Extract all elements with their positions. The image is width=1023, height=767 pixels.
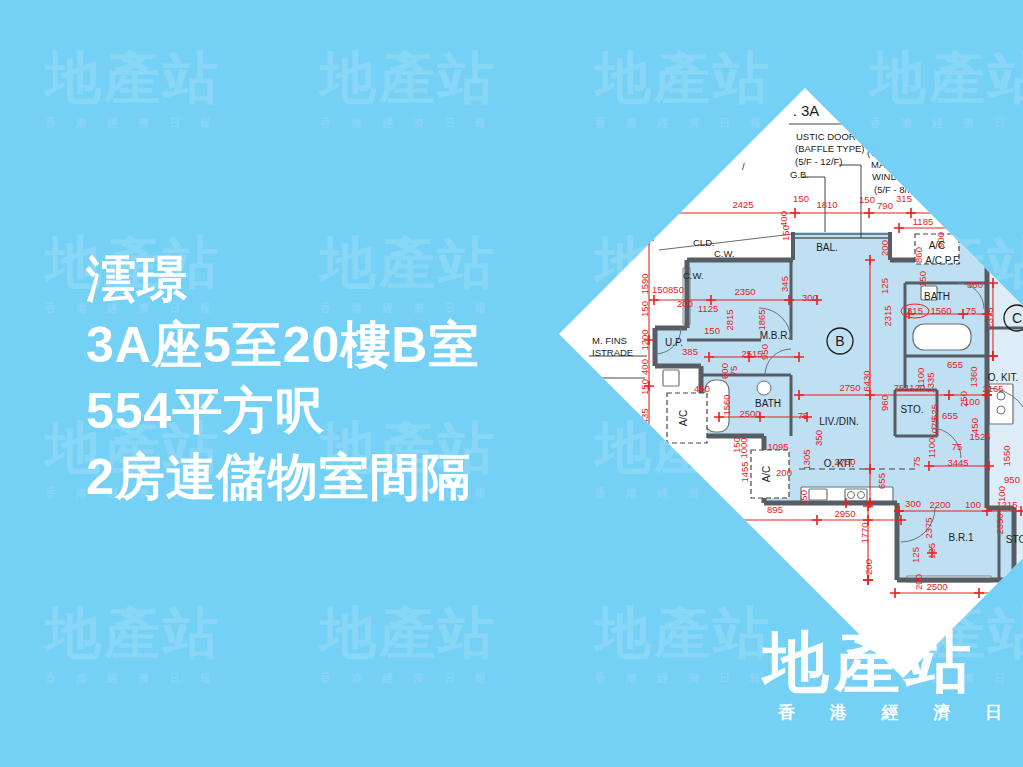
plan-dim-label: 1185 <box>913 216 933 227</box>
plan-dim-label: 400 <box>639 359 650 375</box>
plan-dim-label: 360 <box>967 279 983 290</box>
plan-dim-label: 150 <box>704 325 720 336</box>
plan-dim-label: 1770 <box>859 522 870 543</box>
plan-unit-circle-label: C <box>1012 310 1022 326</box>
plan-dim-label: 450 <box>694 383 710 394</box>
plan-fixture <box>858 492 865 499</box>
plan-dim-label: 2350 <box>734 286 755 297</box>
plan-dim-label: 1335 <box>925 372 936 393</box>
plan-dim-label: 75 <box>798 410 809 421</box>
plan-room-label: LIV./DIN. <box>819 416 859 427</box>
plan-dim-label: 950 <box>1004 474 1020 485</box>
plan-dim-label: 200 <box>879 240 890 256</box>
brand-subtext: 香 港 經 濟 日 報 <box>778 701 1023 724</box>
plan-room-label: B.R.1 <box>948 532 973 543</box>
plan-dim-label: 1560 <box>930 305 951 316</box>
plan-dim-label: 75 <box>966 305 977 316</box>
plan-note: M. FINS <box>592 335 627 346</box>
plan-dim-label: 150 <box>652 284 668 295</box>
plan-dim-label: 960 <box>879 395 890 411</box>
plan-dim-label: 1200 <box>639 329 650 350</box>
plan-fixture <box>997 406 1005 414</box>
watermark-logo: 地產站 <box>320 605 506 661</box>
plan-dim-label: 2950 <box>834 508 855 519</box>
plan-dim-label: 150 <box>639 379 650 395</box>
plan-dim-label: 860 <box>913 247 924 263</box>
plan-dim-label: 1075 <box>929 417 940 438</box>
plan-note: G.B. <box>790 169 809 180</box>
plan-dim-label: 250 <box>958 391 969 407</box>
plan-dim-label: 125 <box>926 543 937 559</box>
plan-tower-label: . 3A <box>793 102 820 119</box>
plan-note: / <box>742 161 745 172</box>
watermark-logo: 地產站 <box>45 605 231 661</box>
plan-note: (BAFFLE TYPE) <box>795 143 865 154</box>
plan-dim-label: 100 <box>996 486 1007 502</box>
plan-dim-label: 200 <box>863 559 874 575</box>
plan-note: (5/F - 12/F) <box>795 156 843 167</box>
watermark-tile: 地產站香港經濟日報 <box>595 50 781 129</box>
plan-note: USTIC DOOR <box>796 131 856 142</box>
watermark-tile: 地產站香港經濟日報 <box>320 50 506 129</box>
plan-room-label: A/C P.F. <box>925 255 960 266</box>
plan-dim-label: 1455 <box>739 461 750 482</box>
watermark-subtext: 香港經濟日報 <box>320 118 506 129</box>
promo-card: 地產站香港經濟日報地產站香港經濟日報地產站香港經濟日報地產站香港經濟日報地產站香… <box>0 0 1023 767</box>
plan-dim-label: 2425 <box>732 199 753 210</box>
plan-dim-label: 1305 <box>801 449 812 470</box>
watermark-logo: 地產站 <box>320 50 506 106</box>
plan-dim-label: 850 <box>668 284 684 295</box>
plan-note: C.W. <box>714 248 735 259</box>
watermark-subtext: 香港經濟日報 <box>320 673 506 684</box>
plan-note: ISTRADE <box>592 347 633 358</box>
plan-dim-label: 1095 <box>767 441 788 452</box>
plan-dim-label: 1810 <box>816 199 837 210</box>
plan-dim-label: 345 <box>779 276 790 292</box>
plan-dim-label: 1125 <box>698 303 718 314</box>
watermark-tile: 地產站香港經濟日報 <box>45 605 231 684</box>
plan-dim-label: 1590 <box>639 273 650 294</box>
plan-room-label: BAL. <box>816 242 838 253</box>
plan-dim-label: 75 <box>911 457 922 468</box>
plan-dim-label: 1550 <box>1001 445 1012 466</box>
plan-dim-label: 75 <box>894 382 905 393</box>
watermark-tile: 地產站香港經濟日報 <box>870 50 1023 129</box>
plan-room-label: M.B.R. <box>760 330 791 341</box>
plan-dim-label: 2165 <box>982 383 1003 394</box>
plan-dim-label: 150 <box>780 225 791 241</box>
plan-dim-label: 2750 <box>839 382 860 393</box>
plan-dim-label: 2315 <box>882 305 893 326</box>
plan-dim-label: 790 <box>877 200 893 211</box>
plan-fixture <box>848 492 855 499</box>
plan-dim-label: 200 <box>776 467 792 478</box>
plan-dim-label: 655 <box>942 410 958 421</box>
plan-dim-label: 450 <box>969 418 980 434</box>
headline-line-project: 澐璟 <box>86 246 479 312</box>
plan-dim-label: 75 <box>728 366 739 377</box>
plan-dim-label: 150 <box>639 301 650 317</box>
plan-fixture <box>663 370 679 386</box>
watermark-logo: 地產站 <box>595 605 781 661</box>
plan-room-label: U.P. <box>665 337 683 348</box>
plan-dim-label: 100 <box>965 499 981 510</box>
plan-dim-label: 2375 <box>923 517 934 538</box>
plan-dim-label: 300 <box>802 292 818 303</box>
plan-dim-label: 150 <box>917 271 928 287</box>
watermark-subtext: 香港經濟日報 <box>595 673 781 684</box>
plan-note: C.W. <box>683 270 704 281</box>
plan-dim-label: 1100 <box>926 438 937 458</box>
plan-dim-label: 2500 <box>926 581 947 592</box>
plan-dim-label: 1865 <box>756 309 767 330</box>
watermark-tile: 地產站香港經濟日報 <box>45 50 231 129</box>
plan-dim-label: 895 <box>767 504 783 515</box>
watermark-logo: 地產站 <box>870 50 1023 106</box>
watermark-subtext: 香港經濟日報 <box>45 673 231 684</box>
watermark-subtext: 香港經濟日報 <box>870 118 1023 129</box>
plan-dim-label: 150 <box>859 194 875 205</box>
plan-dim-label: 75 <box>952 441 963 452</box>
plan-room-label: BATH <box>924 291 950 302</box>
plan-dim-label: 125 <box>910 547 921 563</box>
plan-room-label: O. KIT. <box>988 372 1019 383</box>
plan-fixture <box>757 381 771 395</box>
plan-dim-label: 2500 <box>739 408 760 419</box>
plan-dim-label: 125 <box>879 278 890 294</box>
plan-dim-label: 1560 <box>721 394 732 415</box>
plan-dim-label: 150 <box>793 193 809 204</box>
headline-line-layout: 2房連儲物室間隔 <box>86 444 479 510</box>
plan-dim-label: 2200 <box>929 499 950 510</box>
plan-room-label: STO. <box>900 404 923 415</box>
headline-line-area: 554平方呎 <box>86 378 479 444</box>
plan-dim-label: 950 <box>759 344 770 360</box>
plan-note: CLD. <box>693 237 715 248</box>
watermark-subtext: 香港經濟日報 <box>595 118 781 129</box>
plan-room-label: BATH <box>755 398 781 409</box>
plan-dim-label: 1000 <box>738 437 749 458</box>
watermark-logo: 地產站 <box>595 50 781 106</box>
plan-room-label: A/C <box>678 410 689 427</box>
watermark-tile: 地產站香港經濟日報 <box>320 605 506 684</box>
plan-dim-label: 3445 <box>947 457 968 468</box>
watermark-subtext: 香港經濟日報 <box>45 118 231 129</box>
plan-dim-label: 350 <box>813 430 824 446</box>
plan-dim-label: 6430 <box>861 370 872 391</box>
plan-unit-circle-label: B <box>835 333 844 349</box>
plan-dim-label: 655 <box>947 359 963 370</box>
plan-dim-label: 2375 <box>984 307 995 328</box>
plan-dim-label: 400 <box>778 211 789 227</box>
plan-room-label: A/C <box>761 466 772 483</box>
plan-dim-label: 1360 <box>968 366 979 387</box>
plan-dim-label: 655 <box>876 473 887 489</box>
plan-dim-label: 385 <box>682 346 698 357</box>
plan-room-label: STO <box>1006 534 1023 545</box>
plan-dim-label: 200 <box>913 574 924 590</box>
watermark-tile: 地產站香港經濟日報 <box>595 605 781 684</box>
plan-dim-label: 315 <box>907 305 923 316</box>
plan-dim-label: 150 <box>798 490 809 506</box>
plan-dim-label: 300 <box>905 498 921 509</box>
headline-block: 澐璟 3A座5至20樓B室 554平方呎 2房連儲物室間隔 <box>86 246 479 510</box>
headline-line-unit: 3A座5至20樓B室 <box>86 312 479 378</box>
plan-fixture <box>913 324 971 350</box>
plan-dim-label: 2815 <box>724 309 735 330</box>
plan-dim-label: 2350 <box>994 513 1005 534</box>
plan-room-label: A/C <box>929 240 946 251</box>
watermark-logo: 地產站 <box>45 50 231 106</box>
plan-room-label: O. KIT. <box>824 458 855 469</box>
plan-dim-label: 200 <box>677 298 693 309</box>
plan-fixture <box>809 489 827 500</box>
